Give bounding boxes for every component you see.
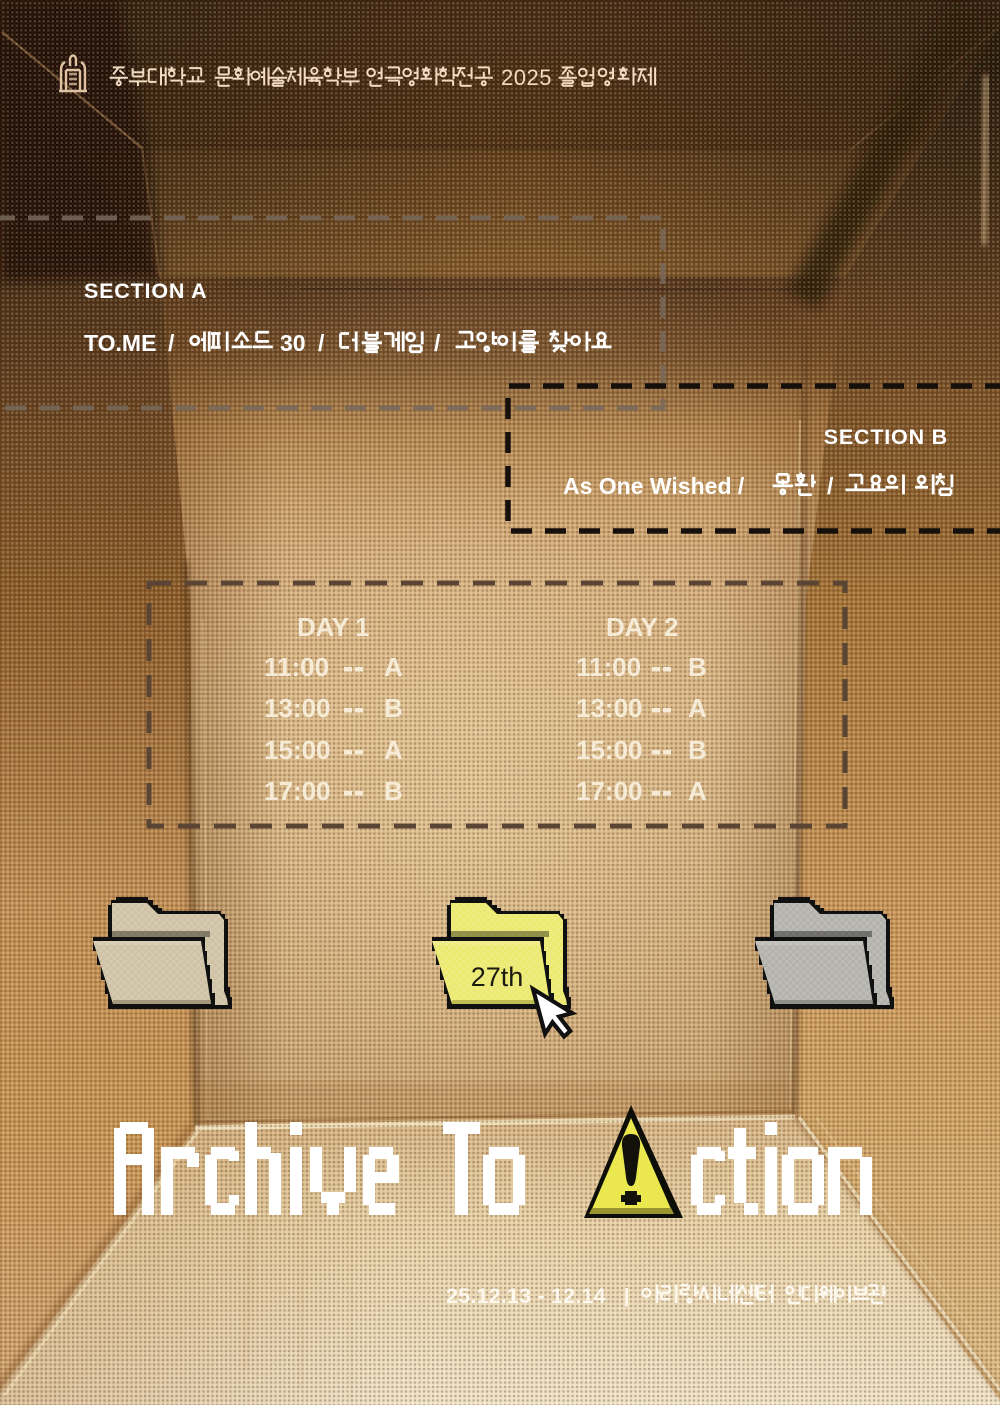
svg-text:25.12.13 - 12.14: 25.12.13 - 12.14 (446, 1284, 606, 1308)
svg-text:2025: 2025 (501, 65, 552, 90)
svg-text:A: A (384, 652, 403, 682)
svg-text:/: / (827, 473, 834, 499)
svg-text:13:00: 13:00 (576, 693, 643, 723)
svg-text:As One Wished /: As One Wished / (563, 473, 745, 499)
svg-text:TO.ME: TO.ME (84, 330, 156, 356)
svg-text:B: B (688, 735, 707, 765)
svg-text:15:00: 15:00 (576, 735, 643, 765)
svg-text:DAY 1: DAY 1 (297, 612, 369, 642)
svg-text:11:00: 11:00 (576, 652, 641, 682)
svg-text:/: / (318, 330, 325, 356)
svg-text:|: | (624, 1286, 629, 1307)
svg-text:30: 30 (280, 330, 306, 356)
svg-text:B: B (384, 776, 403, 806)
svg-text:A: A (384, 735, 403, 765)
svg-text:SECTION B: SECTION B (824, 425, 948, 449)
svg-text:11:00: 11:00 (264, 652, 329, 682)
svg-text:B: B (384, 693, 403, 723)
svg-text:/: / (434, 330, 441, 356)
svg-text:A: A (688, 693, 707, 723)
svg-text:B: B (688, 652, 707, 682)
svg-text:17:00: 17:00 (576, 776, 643, 806)
svg-text:17:00: 17:00 (264, 776, 331, 806)
svg-text:SECTION A: SECTION A (84, 279, 207, 303)
svg-text:DAY 2: DAY 2 (606, 612, 678, 642)
svg-text:13:00: 13:00 (264, 693, 331, 723)
svg-text:/: / (168, 330, 175, 356)
svg-text:27th: 27th (471, 962, 524, 992)
svg-text:A: A (688, 776, 707, 806)
svg-text:15:00: 15:00 (264, 735, 331, 765)
